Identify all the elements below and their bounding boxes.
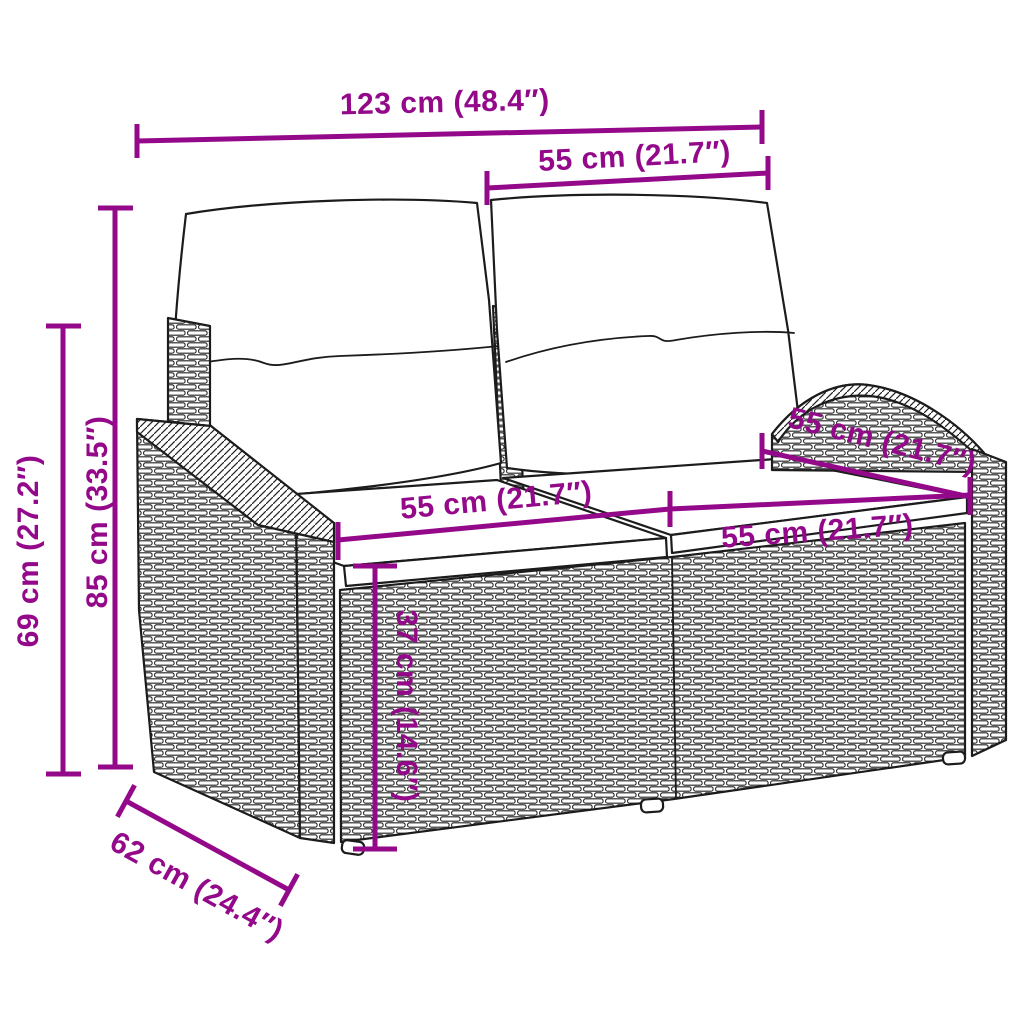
- dim-label-back-height: 85 cm (33.5″): [81, 416, 114, 609]
- sofa-left-arm-front: [296, 508, 334, 843]
- dim-label-total-width: 123 cm (48.4″): [340, 84, 551, 122]
- dimension-diagram: 123 cm (48.4″) 55 cm (21.7″) 85 cm (33.5…: [0, 0, 1024, 1024]
- dim-label-overall-depth: 62 cm (24.4″): [105, 825, 289, 947]
- sofa-foot-right: [943, 751, 966, 765]
- dimension-arm-height: 69 cm (27.2″): [12, 326, 81, 774]
- dim-label-arm-height: 69 cm (27.2″): [12, 455, 45, 648]
- sofa-left-back-post: [168, 318, 210, 428]
- dim-label-seat-height: 37 cm (14.6″): [390, 610, 423, 803]
- back-cushion-right: [491, 195, 799, 475]
- sofa-dimension-drawing: 123 cm (48.4″) 55 cm (21.7″) 85 cm (33.5…: [0, 0, 1024, 1024]
- sofa-foot-center: [641, 798, 664, 813]
- dim-label-backrest-width: 55 cm (21.7″): [537, 135, 731, 178]
- sofa-right-post: [972, 449, 1006, 756]
- dimension-back-height: 85 cm (33.5″): [81, 208, 133, 767]
